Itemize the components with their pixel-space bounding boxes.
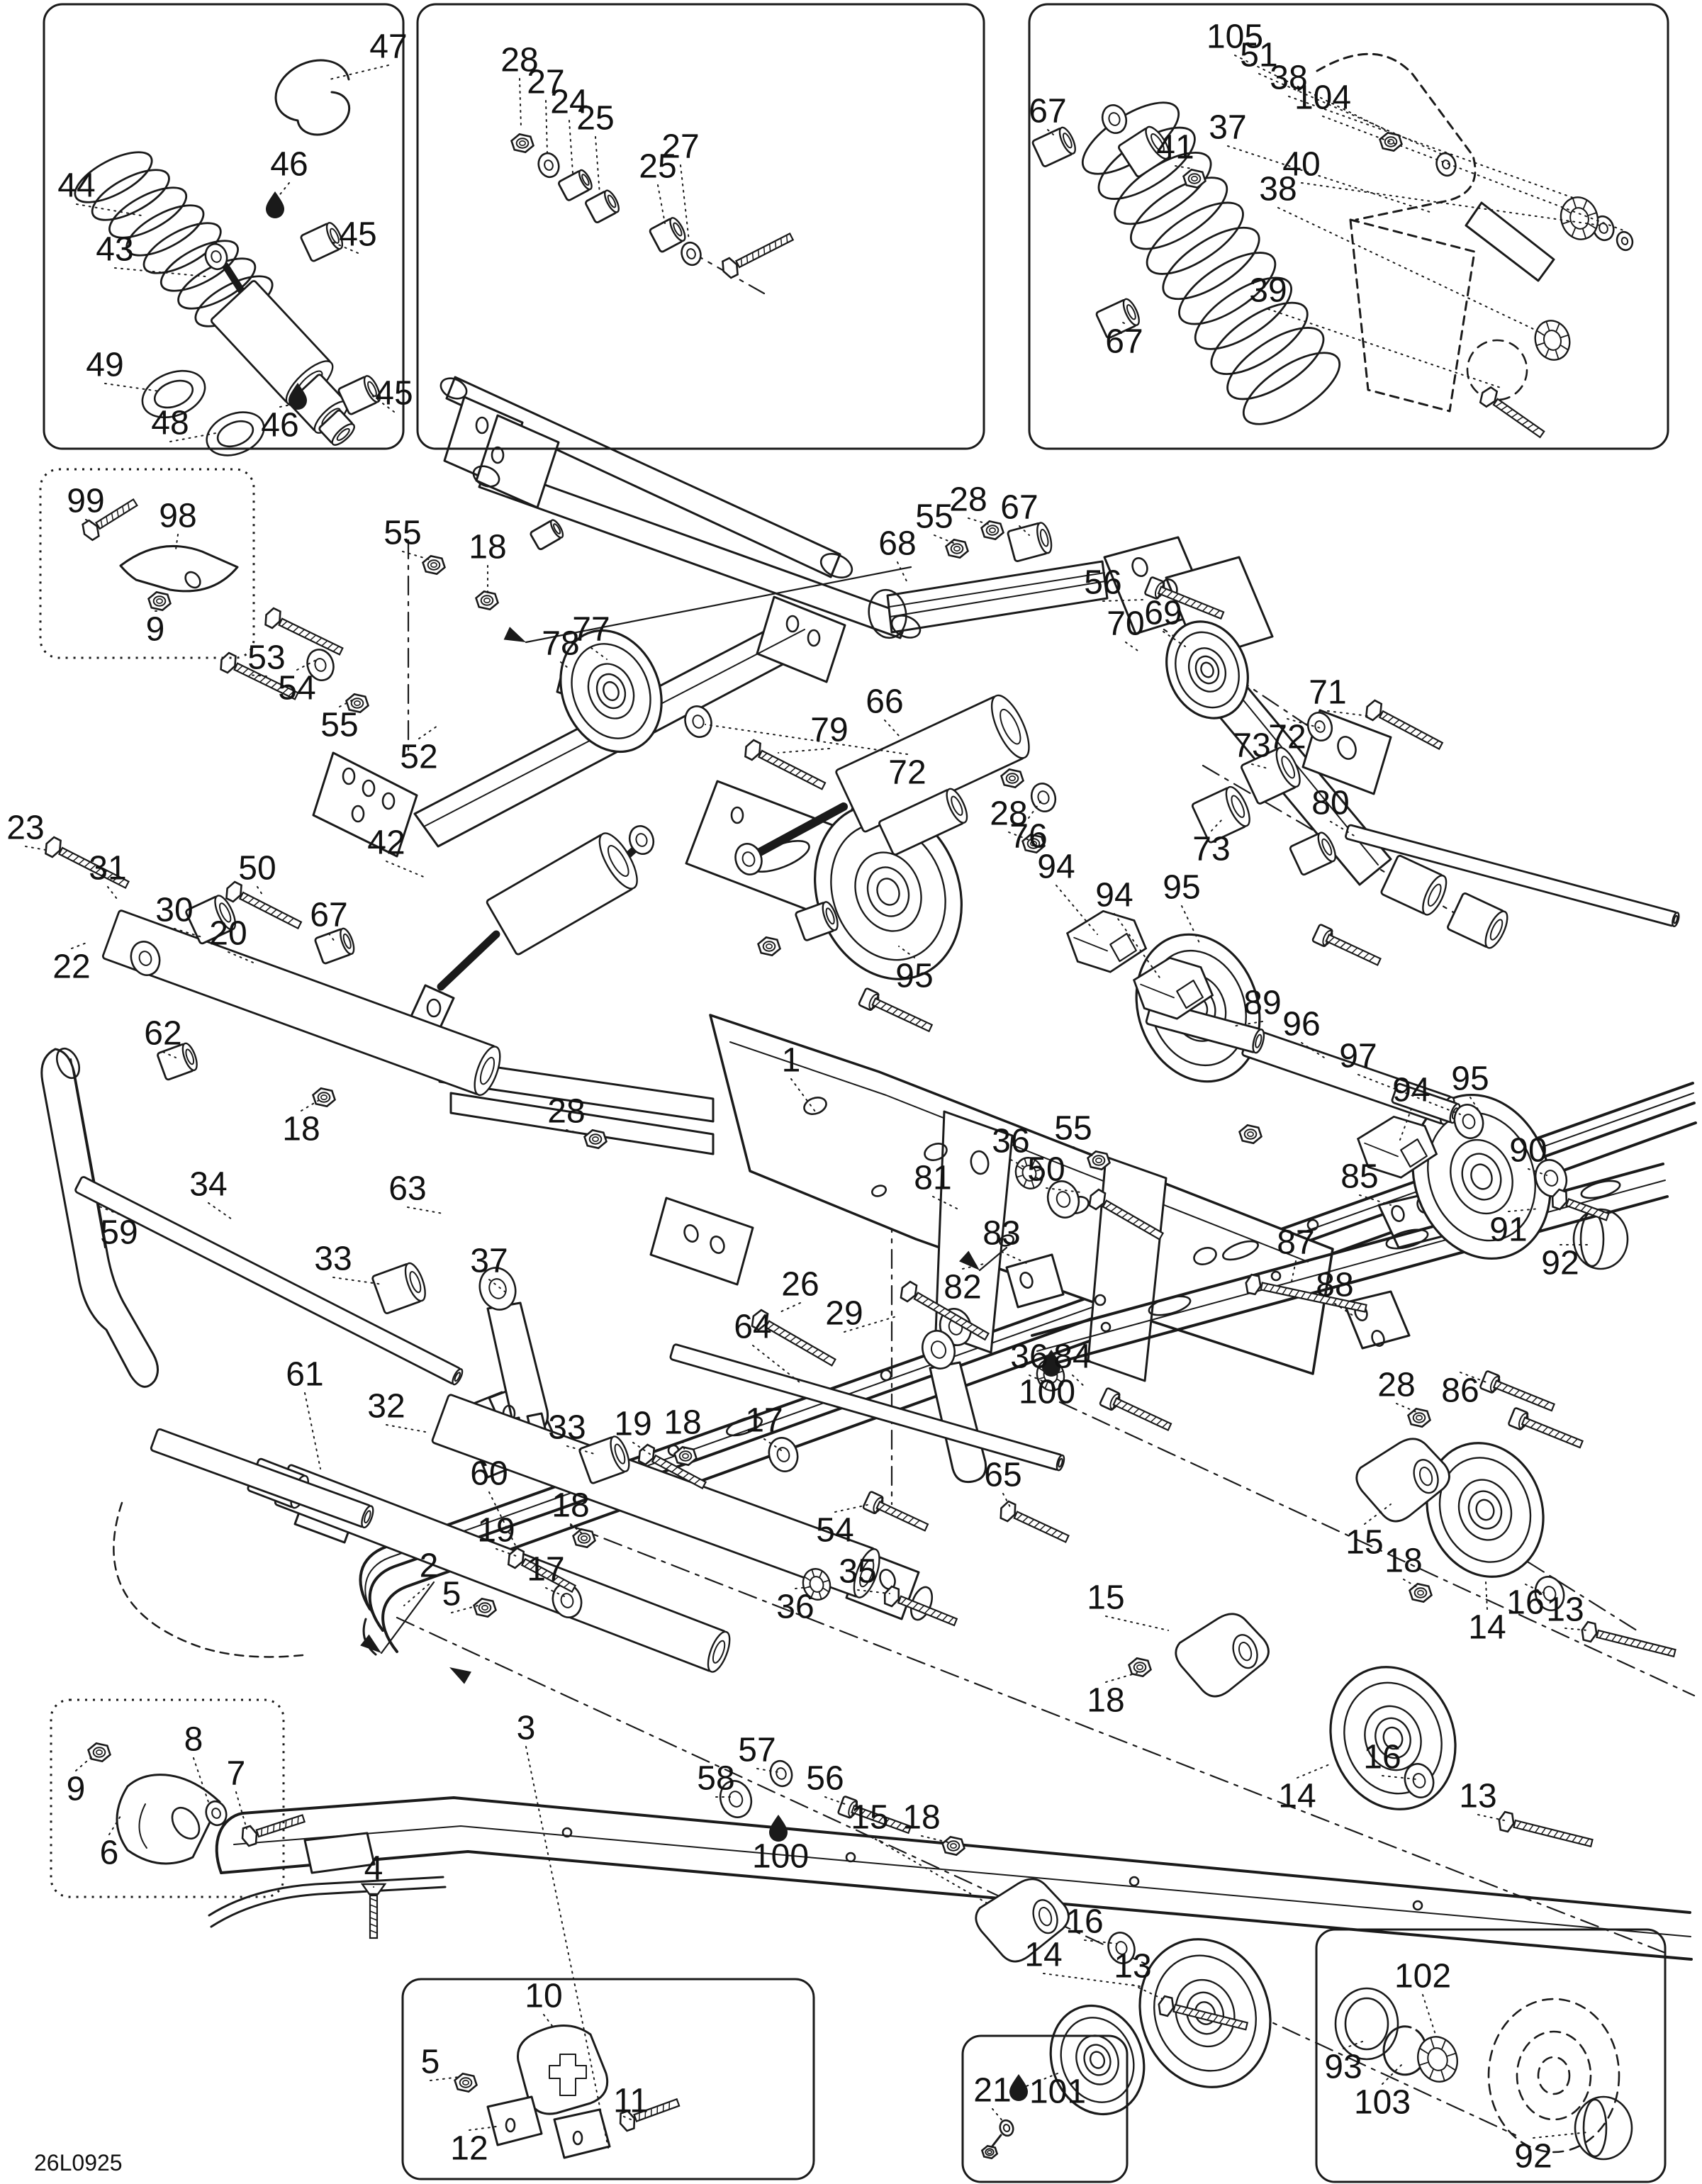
bolt-shank: [257, 1815, 305, 1837]
callout-label: 10: [525, 1978, 562, 2015]
callout-label: 46: [261, 407, 298, 444]
callout-leader: [278, 183, 289, 197]
parts-diagram: 4744464543494846452827242525276710551381…: [0, 0, 1702, 2184]
callout-label: 11: [613, 2083, 649, 2120]
part-path: [121, 546, 237, 590]
callout-label: 34: [189, 1166, 227, 1204]
callout-label: 73: [1233, 727, 1270, 765]
nut-icon: [149, 592, 171, 610]
callout-label: 28: [547, 1093, 585, 1131]
part-cylinder: [486, 828, 644, 956]
slider-block: [1169, 1606, 1277, 1705]
nut-icon: [1002, 769, 1024, 787]
callout-label: 90: [1509, 1132, 1547, 1170]
callout-label: 33: [548, 1409, 586, 1447]
callout-label: 18: [1384, 1542, 1422, 1580]
callout-leader: [305, 1393, 320, 1469]
callout-label: 15: [851, 1799, 888, 1837]
callout-label: 39: [1249, 272, 1287, 310]
callout-label: 83: [982, 1215, 1020, 1253]
coil-turn: [154, 231, 245, 301]
part-path: [276, 60, 349, 135]
callout-leader: [1106, 1616, 1168, 1630]
ring: [214, 416, 257, 451]
nut-icon: [1129, 1658, 1151, 1676]
hidden-outline: [1350, 220, 1474, 411]
callout-label: 19: [614, 1406, 651, 1443]
hidden-outline: [113, 1503, 303, 1657]
nut-icon: [585, 1130, 607, 1148]
part-path: [488, 2097, 542, 2145]
callout-label: 101: [1029, 2073, 1086, 2111]
callout-label: 14: [1278, 1778, 1316, 1815]
callout-label: 92: [1514, 2138, 1552, 2175]
callout-label: 72: [1268, 719, 1306, 756]
callout-label: 64: [734, 1309, 771, 1346]
bolt-shank: [1596, 1630, 1675, 1657]
callout-leader: [77, 204, 145, 216]
bolt-icon: [1580, 1621, 1677, 1662]
nut-icon: [943, 1837, 965, 1854]
callout-leader: [705, 724, 907, 754]
bolt-icon: [1099, 1388, 1173, 1435]
nut-hex: [423, 556, 445, 573]
callout-label: 67: [310, 897, 347, 934]
dashed-wheel: [1517, 2032, 1591, 2119]
nut-icon: [675, 1447, 697, 1465]
dashed-wheel: [1538, 2057, 1569, 2094]
callout-label: 17: [745, 1402, 783, 1440]
callout-label: 59: [100, 1214, 138, 1252]
callout-label: 95: [895, 958, 933, 995]
callout-leader: [658, 185, 665, 223]
callout-label: 81: [914, 1160, 951, 1197]
nut-icon: [1240, 1125, 1262, 1143]
nut-icon: [946, 539, 968, 557]
nut-hex: [512, 134, 534, 152]
nut-icon: [1409, 1409, 1431, 1426]
callout-label: 100: [752, 1838, 809, 1876]
callout-label: 54: [278, 670, 315, 707]
callout-label: 67: [1000, 489, 1038, 527]
callout-leader: [386, 1425, 425, 1432]
callout-label: 45: [375, 375, 413, 413]
callout-label: 63: [388, 1170, 426, 1208]
callout-label: 35: [839, 1553, 876, 1591]
callout-leader: [1486, 1582, 1487, 1609]
nut-hex: [573, 1529, 595, 1547]
washer-outer: [1028, 780, 1059, 814]
callout-label: 65: [984, 1457, 1021, 1494]
callout-leader: [403, 551, 431, 560]
callout-label: 82: [944, 1269, 981, 1306]
nut-icon: [313, 1088, 335, 1106]
oil-drop-icon: [266, 191, 284, 218]
ring: [1413, 1901, 1422, 1910]
callout-label: 68: [878, 525, 916, 563]
bolt-head: [1497, 1811, 1516, 1832]
callout-label: 33: [314, 1241, 352, 1278]
nut-hex: [675, 1447, 697, 1465]
callout-label: 72: [888, 754, 926, 792]
callout-label: 55: [320, 707, 358, 744]
callout-label: 14: [1024, 1937, 1062, 1974]
callout-leader: [546, 101, 547, 152]
callout-label: 84: [1053, 1338, 1091, 1376]
nut-hex: [1240, 1125, 1262, 1143]
callout-label: 55: [915, 498, 953, 536]
callout-label: 46: [270, 146, 308, 184]
nut-hex: [946, 539, 968, 557]
callout-label: 28: [949, 481, 987, 519]
nut-hex: [149, 592, 171, 610]
nut-hex: [585, 1130, 607, 1148]
callout-label: 104: [1294, 79, 1351, 117]
callout-label: 16: [1363, 1739, 1401, 1776]
callout-leader: [386, 861, 425, 878]
washer-outer: [1434, 151, 1459, 179]
callout-label: 1: [782, 1042, 801, 1080]
bolt-icon: [1508, 1408, 1585, 1453]
bolt-icon: [1312, 924, 1383, 970]
callout-leader: [1404, 1579, 1418, 1588]
callout-label: 49: [86, 347, 123, 384]
nut-hex: [1002, 769, 1024, 787]
nut-icon: [1410, 1584, 1432, 1601]
callout-leader: [1126, 642, 1140, 652]
callout-label: 93: [1324, 2049, 1362, 2086]
ring: [1584, 2100, 1606, 2156]
callout-label: 50: [238, 850, 276, 887]
callout-label: 103: [1354, 2084, 1411, 2122]
callout-label: 56: [806, 1760, 844, 1798]
callout-leader: [76, 1757, 92, 1771]
callout-label: 79: [810, 712, 848, 749]
callout-label: 95: [1163, 869, 1200, 907]
callout-label: 73: [1192, 831, 1230, 868]
callout-label: 43: [96, 231, 133, 269]
callout-label: 70: [1107, 605, 1144, 643]
callout-label: 69: [1144, 595, 1182, 632]
callout-leader: [968, 518, 990, 525]
callout-label: 9: [67, 1771, 86, 1808]
callout-label: 99: [67, 483, 104, 520]
callout-label: 7: [227, 1755, 246, 1793]
nut-icon: [982, 2146, 997, 2158]
diagram-code: 26L0925: [34, 2150, 123, 2175]
callout-leader: [419, 724, 440, 739]
callout-label: 67: [1029, 93, 1066, 130]
bolt-shank: [279, 619, 343, 655]
callout-label: 48: [151, 405, 189, 442]
nut-icon: [758, 937, 780, 955]
callout-label: 18: [902, 1799, 940, 1837]
callout-leader: [1228, 146, 1432, 213]
dashed-wheel: [1489, 1999, 1619, 2152]
star-outer: [1530, 316, 1575, 364]
mount-body: [1064, 904, 1149, 979]
nut-hex: [982, 2146, 997, 2158]
bolt-shank: [1494, 399, 1544, 437]
callout-label: 18: [664, 1404, 701, 1442]
callout-label: 2: [420, 1547, 439, 1585]
callout-leader: [1297, 1764, 1331, 1778]
callout-label: 18: [469, 529, 506, 566]
slider-body: [1169, 1606, 1277, 1705]
callout-label: 85: [1340, 1158, 1378, 1196]
callout-label: 92: [1541, 1245, 1579, 1282]
callout-label: 50: [1027, 1151, 1065, 1189]
part-path: [221, 1852, 1691, 1959]
part-path: [888, 561, 1107, 632]
bolt-icon: [863, 1491, 930, 1536]
callout-label: 66: [866, 683, 903, 721]
callout-label: 55: [1054, 1110, 1092, 1148]
callout-label: 44: [57, 167, 95, 205]
callout-label: 80: [1311, 785, 1349, 822]
washer-icon: [679, 240, 704, 268]
callout-label: 18: [282, 1111, 320, 1148]
arrowhead-icon: [446, 1661, 471, 1684]
callout-label: 37: [1209, 109, 1246, 147]
nut-hex: [1088, 1151, 1110, 1169]
callout-label: 5: [442, 1576, 461, 1613]
part-cylinder: [1032, 125, 1078, 167]
callout-label: 45: [339, 216, 376, 254]
callout-label: 86: [1441, 1372, 1479, 1410]
callout-label: 77: [572, 611, 610, 649]
callout-label: 20: [209, 915, 247, 953]
washer-icon: [535, 151, 561, 180]
callout-label: 36: [992, 1123, 1029, 1160]
callout-label: 56: [1084, 564, 1121, 602]
callout-leader: [408, 1207, 443, 1214]
callout-label: 12: [450, 2130, 488, 2168]
part-path: [991, 2135, 1001, 2148]
part-path: [1466, 203, 1554, 281]
callout-label: 54: [816, 1512, 853, 1550]
callout-leader: [1106, 1673, 1137, 1682]
ring: [1581, 1212, 1603, 1266]
callout-label: 13: [1114, 1948, 1151, 1986]
ring: [1345, 1998, 1388, 2049]
callout-label: 98: [159, 498, 196, 535]
callout-label: 23: [6, 810, 44, 847]
callout-label: 62: [144, 1015, 181, 1053]
callout-label: 19: [477, 1512, 515, 1550]
callout-label: 27: [661, 128, 699, 166]
callout-label: 94: [1095, 877, 1133, 914]
callout-leader: [115, 268, 206, 276]
bolt-shank: [240, 892, 301, 929]
cylinder-body: [150, 1428, 371, 1528]
part-cylinder: [585, 189, 622, 223]
callout-leader: [992, 2109, 1004, 2122]
callout-label: 67: [1105, 323, 1143, 361]
callout-label: 94: [1392, 1072, 1430, 1109]
callout-label: 36: [1010, 1338, 1048, 1376]
callout-label: 26: [781, 1266, 819, 1304]
callout-label: 71: [1309, 674, 1346, 712]
callout-label: 31: [89, 850, 126, 887]
callout-label: 16: [1506, 1584, 1544, 1622]
callout-label: 5: [421, 2044, 440, 2081]
nut-hex: [1129, 1658, 1151, 1676]
callout-label: 15: [1087, 1579, 1124, 1617]
callout-label: 91: [1489, 1211, 1527, 1249]
callout-label: 55: [383, 515, 421, 552]
callout-label: 17: [527, 1551, 564, 1589]
callout-label: 38: [1259, 171, 1297, 208]
callout-label: 42: [367, 824, 405, 862]
bolt-shank: [1014, 1512, 1069, 1542]
callout-label: 95: [1451, 1060, 1489, 1098]
bolt-icon: [997, 1500, 1071, 1547]
callout-label: 41: [1156, 129, 1194, 167]
oil-drop-icon: [1009, 2074, 1028, 2101]
callout-label: 6: [100, 1835, 119, 1872]
callout-label: 89: [1243, 985, 1281, 1022]
part-cylinder: [530, 518, 565, 550]
callout-label: 97: [1339, 1038, 1377, 1075]
nut-icon: [455, 2073, 477, 2091]
callout-label: 100: [1019, 1374, 1075, 1411]
nut-hex: [474, 1598, 496, 1616]
washer-outer: [679, 240, 704, 268]
diagram-page: 4744464543494846452827242525276710551381…: [0, 0, 1702, 2184]
callout-label: 21: [973, 2072, 1011, 2110]
nut-hex: [943, 1837, 965, 1854]
coil-turn: [85, 160, 176, 230]
callout-label: 47: [369, 28, 407, 66]
nut-icon: [474, 1598, 496, 1616]
diagram-art: [40, 4, 1696, 2182]
ring: [1130, 1877, 1138, 1886]
callout-label: 16: [1065, 1903, 1103, 1941]
callout-leader: [208, 1203, 234, 1221]
washer-outer: [535, 151, 561, 180]
nut-hex: [476, 591, 498, 609]
bolt-shank: [1326, 935, 1381, 965]
callout-label: 102: [1394, 1958, 1451, 1995]
callout-label: 18: [1087, 1682, 1124, 1720]
bolt-shank: [1513, 1820, 1592, 1847]
callout-label: 96: [1282, 1006, 1320, 1043]
callout-label: 4: [364, 1850, 383, 1888]
mount-block: [1064, 904, 1149, 979]
callout-label: 60: [470, 1455, 508, 1493]
nut-icon: [423, 556, 445, 573]
nut-hex: [758, 937, 780, 955]
bolt-shank: [758, 751, 825, 789]
nut-icon: [512, 134, 534, 152]
bolt-icon: [720, 228, 796, 279]
callout-leader: [595, 137, 600, 194]
callout-label: 28: [1377, 1367, 1415, 1404]
part-cylinder: [1007, 521, 1054, 561]
callout-label: 32: [367, 1388, 405, 1426]
nut-icon: [89, 1743, 111, 1761]
callout-label: 18: [552, 1487, 589, 1525]
nut-icon: [1184, 169, 1206, 187]
part-cylinder: [558, 169, 594, 201]
part-path: [651, 1198, 753, 1284]
callout-label: 29: [825, 1295, 863, 1333]
nut-icon: [476, 591, 498, 609]
washer-icon: [1615, 230, 1635, 252]
part-path: [1344, 1292, 1409, 1348]
callout-label: 36: [776, 1589, 814, 1626]
callout-label: 88: [1316, 1267, 1353, 1304]
callout-leader: [1423, 1995, 1435, 2034]
callout-leader: [108, 887, 117, 899]
callout-label: 57: [738, 1732, 776, 1769]
callout-label: 13: [1459, 1778, 1496, 1815]
callout-leader: [1268, 309, 1503, 388]
callout-label: 30: [155, 892, 193, 929]
bolt-icon: [858, 988, 934, 1036]
callout-label: 15: [1345, 1524, 1383, 1562]
callout-label: 94: [1037, 849, 1075, 886]
bolt-icon: [1497, 1811, 1594, 1852]
nut-hex: [1410, 1584, 1432, 1601]
callout-label: 14: [1468, 1609, 1506, 1647]
nut-icon: [573, 1529, 595, 1547]
washer-icon: [1028, 780, 1059, 814]
callout-label: 8: [184, 1721, 203, 1759]
callout-label: 61: [286, 1356, 323, 1394]
bolt-shank: [877, 1502, 928, 1531]
callout-label: 87: [1277, 1224, 1314, 1262]
star-washer-icon: [1530, 316, 1575, 364]
washer-icon: [1434, 151, 1459, 179]
callout-label: 25: [576, 100, 614, 138]
part-cylinder: [150, 1428, 375, 1529]
nut-icon: [1088, 1151, 1110, 1169]
callout-label: 52: [400, 739, 437, 776]
callout-leader: [778, 749, 829, 753]
ring: [201, 404, 271, 463]
nut-hex: [89, 1743, 111, 1761]
nut-hex: [1409, 1409, 1431, 1426]
part-cylinder: [372, 1261, 430, 1314]
callout-leader: [778, 1303, 800, 1313]
callout-label: 13: [1546, 1591, 1584, 1629]
callout-leader: [520, 79, 521, 128]
nut-hex: [313, 1088, 335, 1106]
callout-label: 58: [697, 1760, 734, 1798]
part-cylinder: [1447, 892, 1511, 951]
callout-label: 22: [52, 948, 90, 986]
callout-leader: [257, 887, 262, 895]
callout-label: 3: [517, 1710, 536, 1747]
callout-label: 9: [146, 611, 165, 649]
bolt-icon: [1477, 385, 1547, 442]
arrowhead-icon: [504, 627, 530, 649]
callout-leader: [569, 121, 573, 173]
callout-leader: [885, 720, 900, 737]
part-line: [441, 934, 496, 987]
callout-leader: [897, 562, 907, 583]
nut-hex: [1184, 169, 1206, 187]
callout-label: 37: [470, 1243, 508, 1280]
nut-hex: [455, 2073, 477, 2091]
